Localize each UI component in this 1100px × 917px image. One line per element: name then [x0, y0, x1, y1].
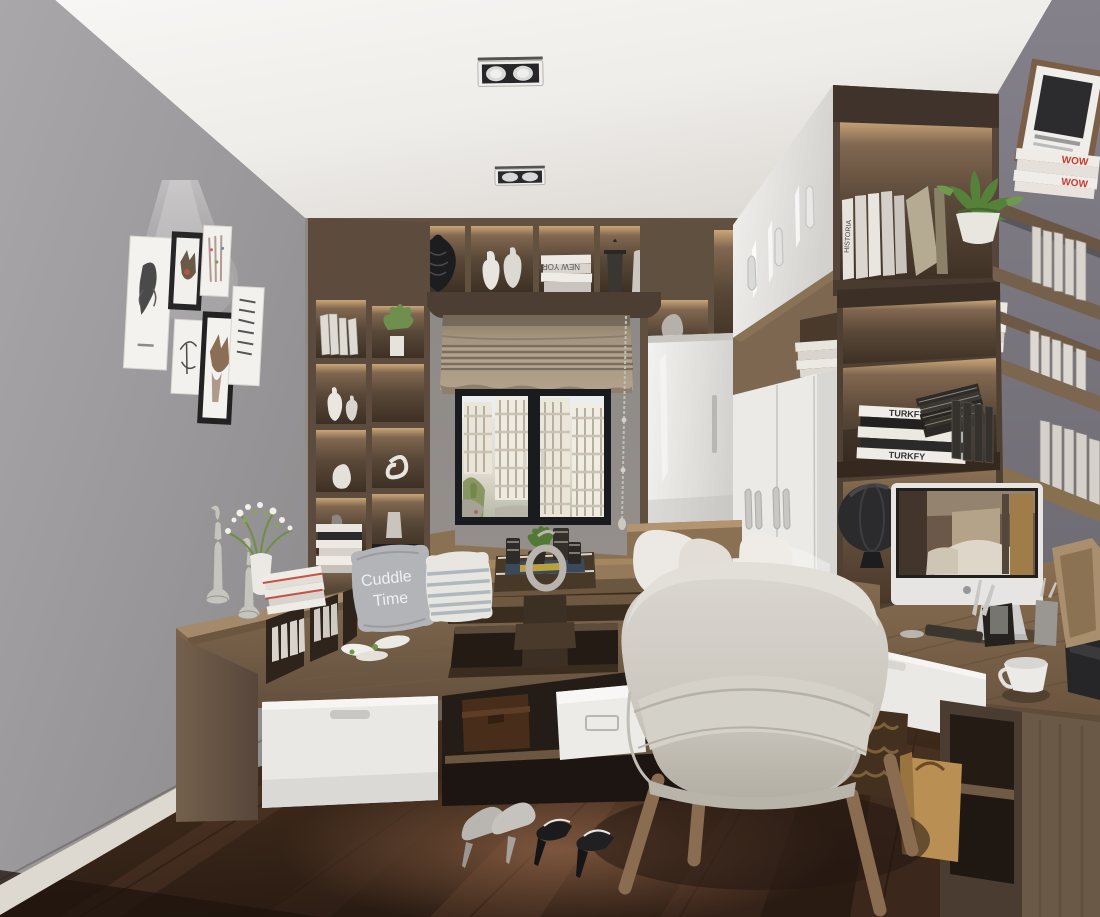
- svg-text:TURKFY: TURKFY: [888, 450, 925, 462]
- svg-text:TURKFY: TURKFY: [889, 408, 926, 420]
- svg-text:NEW YORK: NEW YORK: [536, 262, 580, 271]
